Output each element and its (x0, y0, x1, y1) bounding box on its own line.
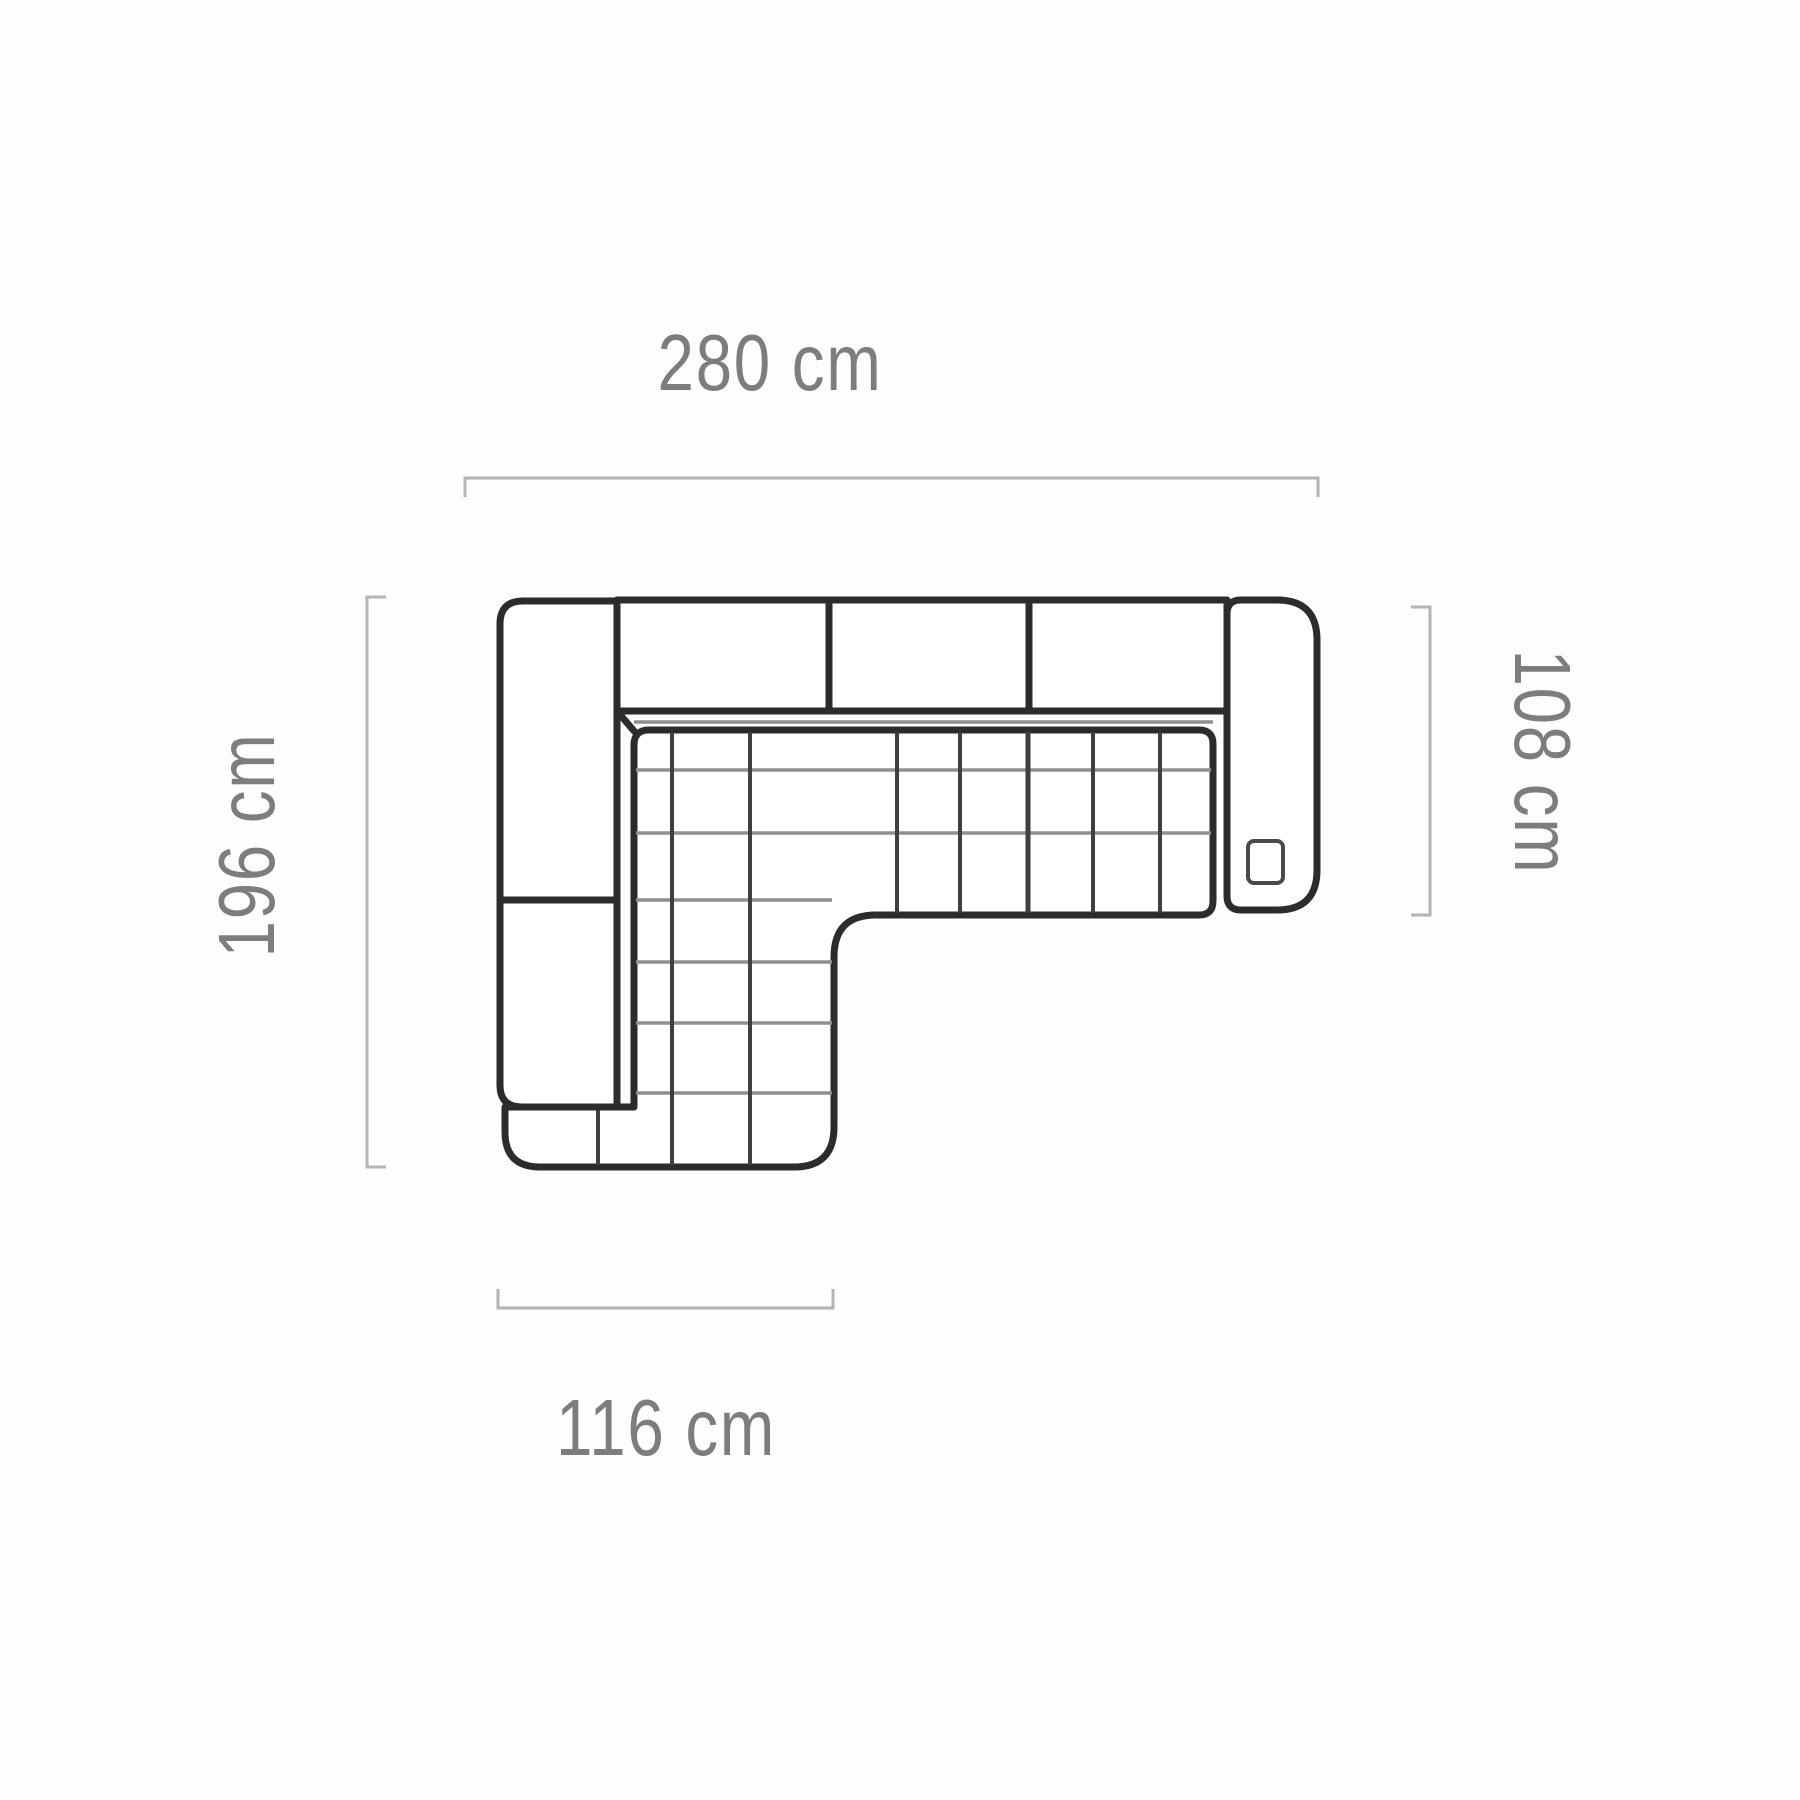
dimension-line-bottom (498, 1289, 833, 1308)
right-armrest-outline (1227, 600, 1317, 910)
dimension-label-left: 196 cm (201, 733, 293, 958)
dimension-line-top (465, 478, 1318, 497)
dimension-label-right: 108 cm (1496, 650, 1588, 875)
right-armrest (1227, 600, 1317, 910)
left-armrest-upper-panel (500, 601, 617, 900)
sofa-dimension-diagram: 280 cm 196 cm 108 cm 116 cm (0, 0, 1800, 1800)
dimension-label-top: 280 cm (658, 317, 883, 409)
dimension-label-bottom: 116 cm (556, 1382, 776, 1474)
left-armrest-lower-panel (500, 900, 617, 1107)
backrest (617, 600, 1227, 731)
backrest-outline (617, 600, 1227, 711)
dimension-line-right (1411, 607, 1430, 915)
dimension-line-left (367, 597, 386, 1167)
